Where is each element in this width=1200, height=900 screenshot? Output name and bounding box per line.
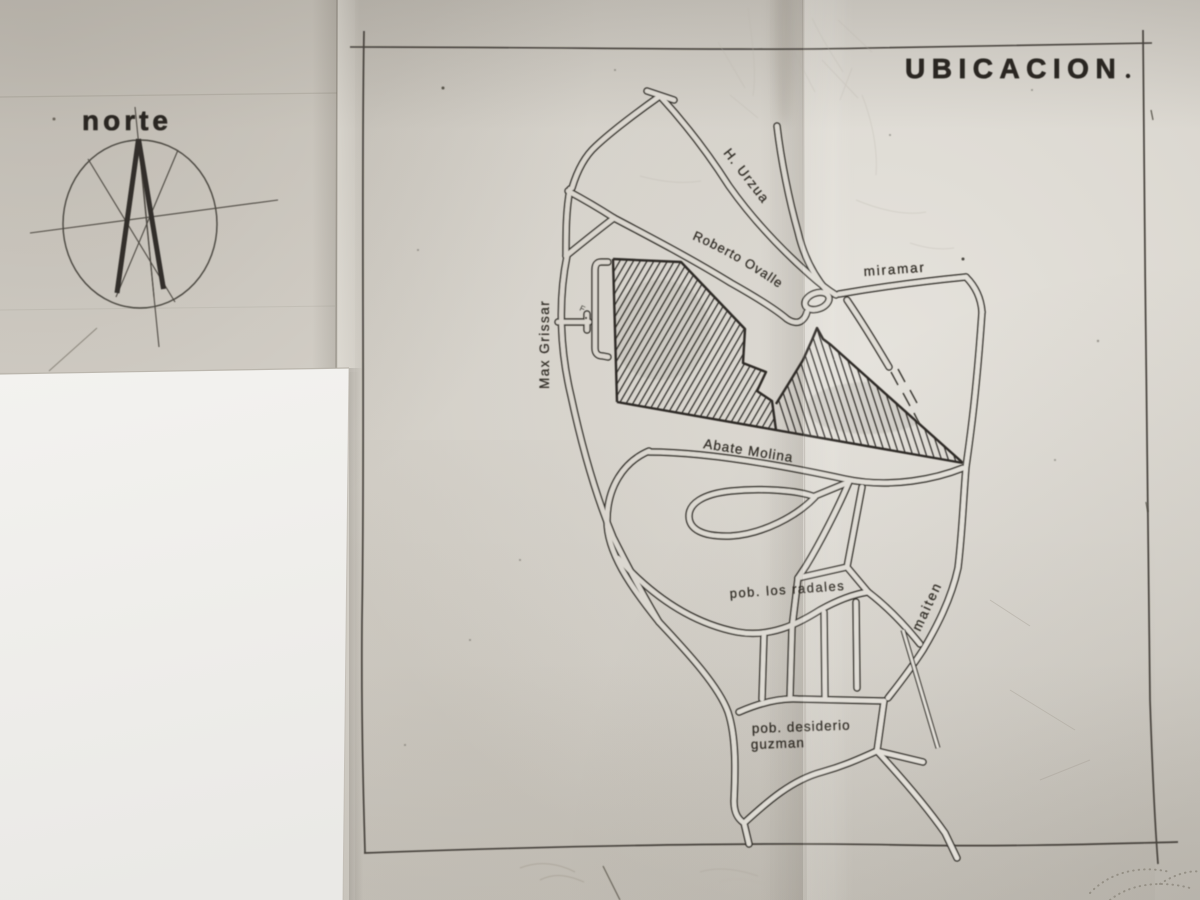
svg-text:Max Grissar: Max Grissar (537, 300, 552, 389)
svg-text:norte: norte (82, 105, 172, 136)
svg-text:UBICACION: UBICACION (905, 53, 1122, 84)
